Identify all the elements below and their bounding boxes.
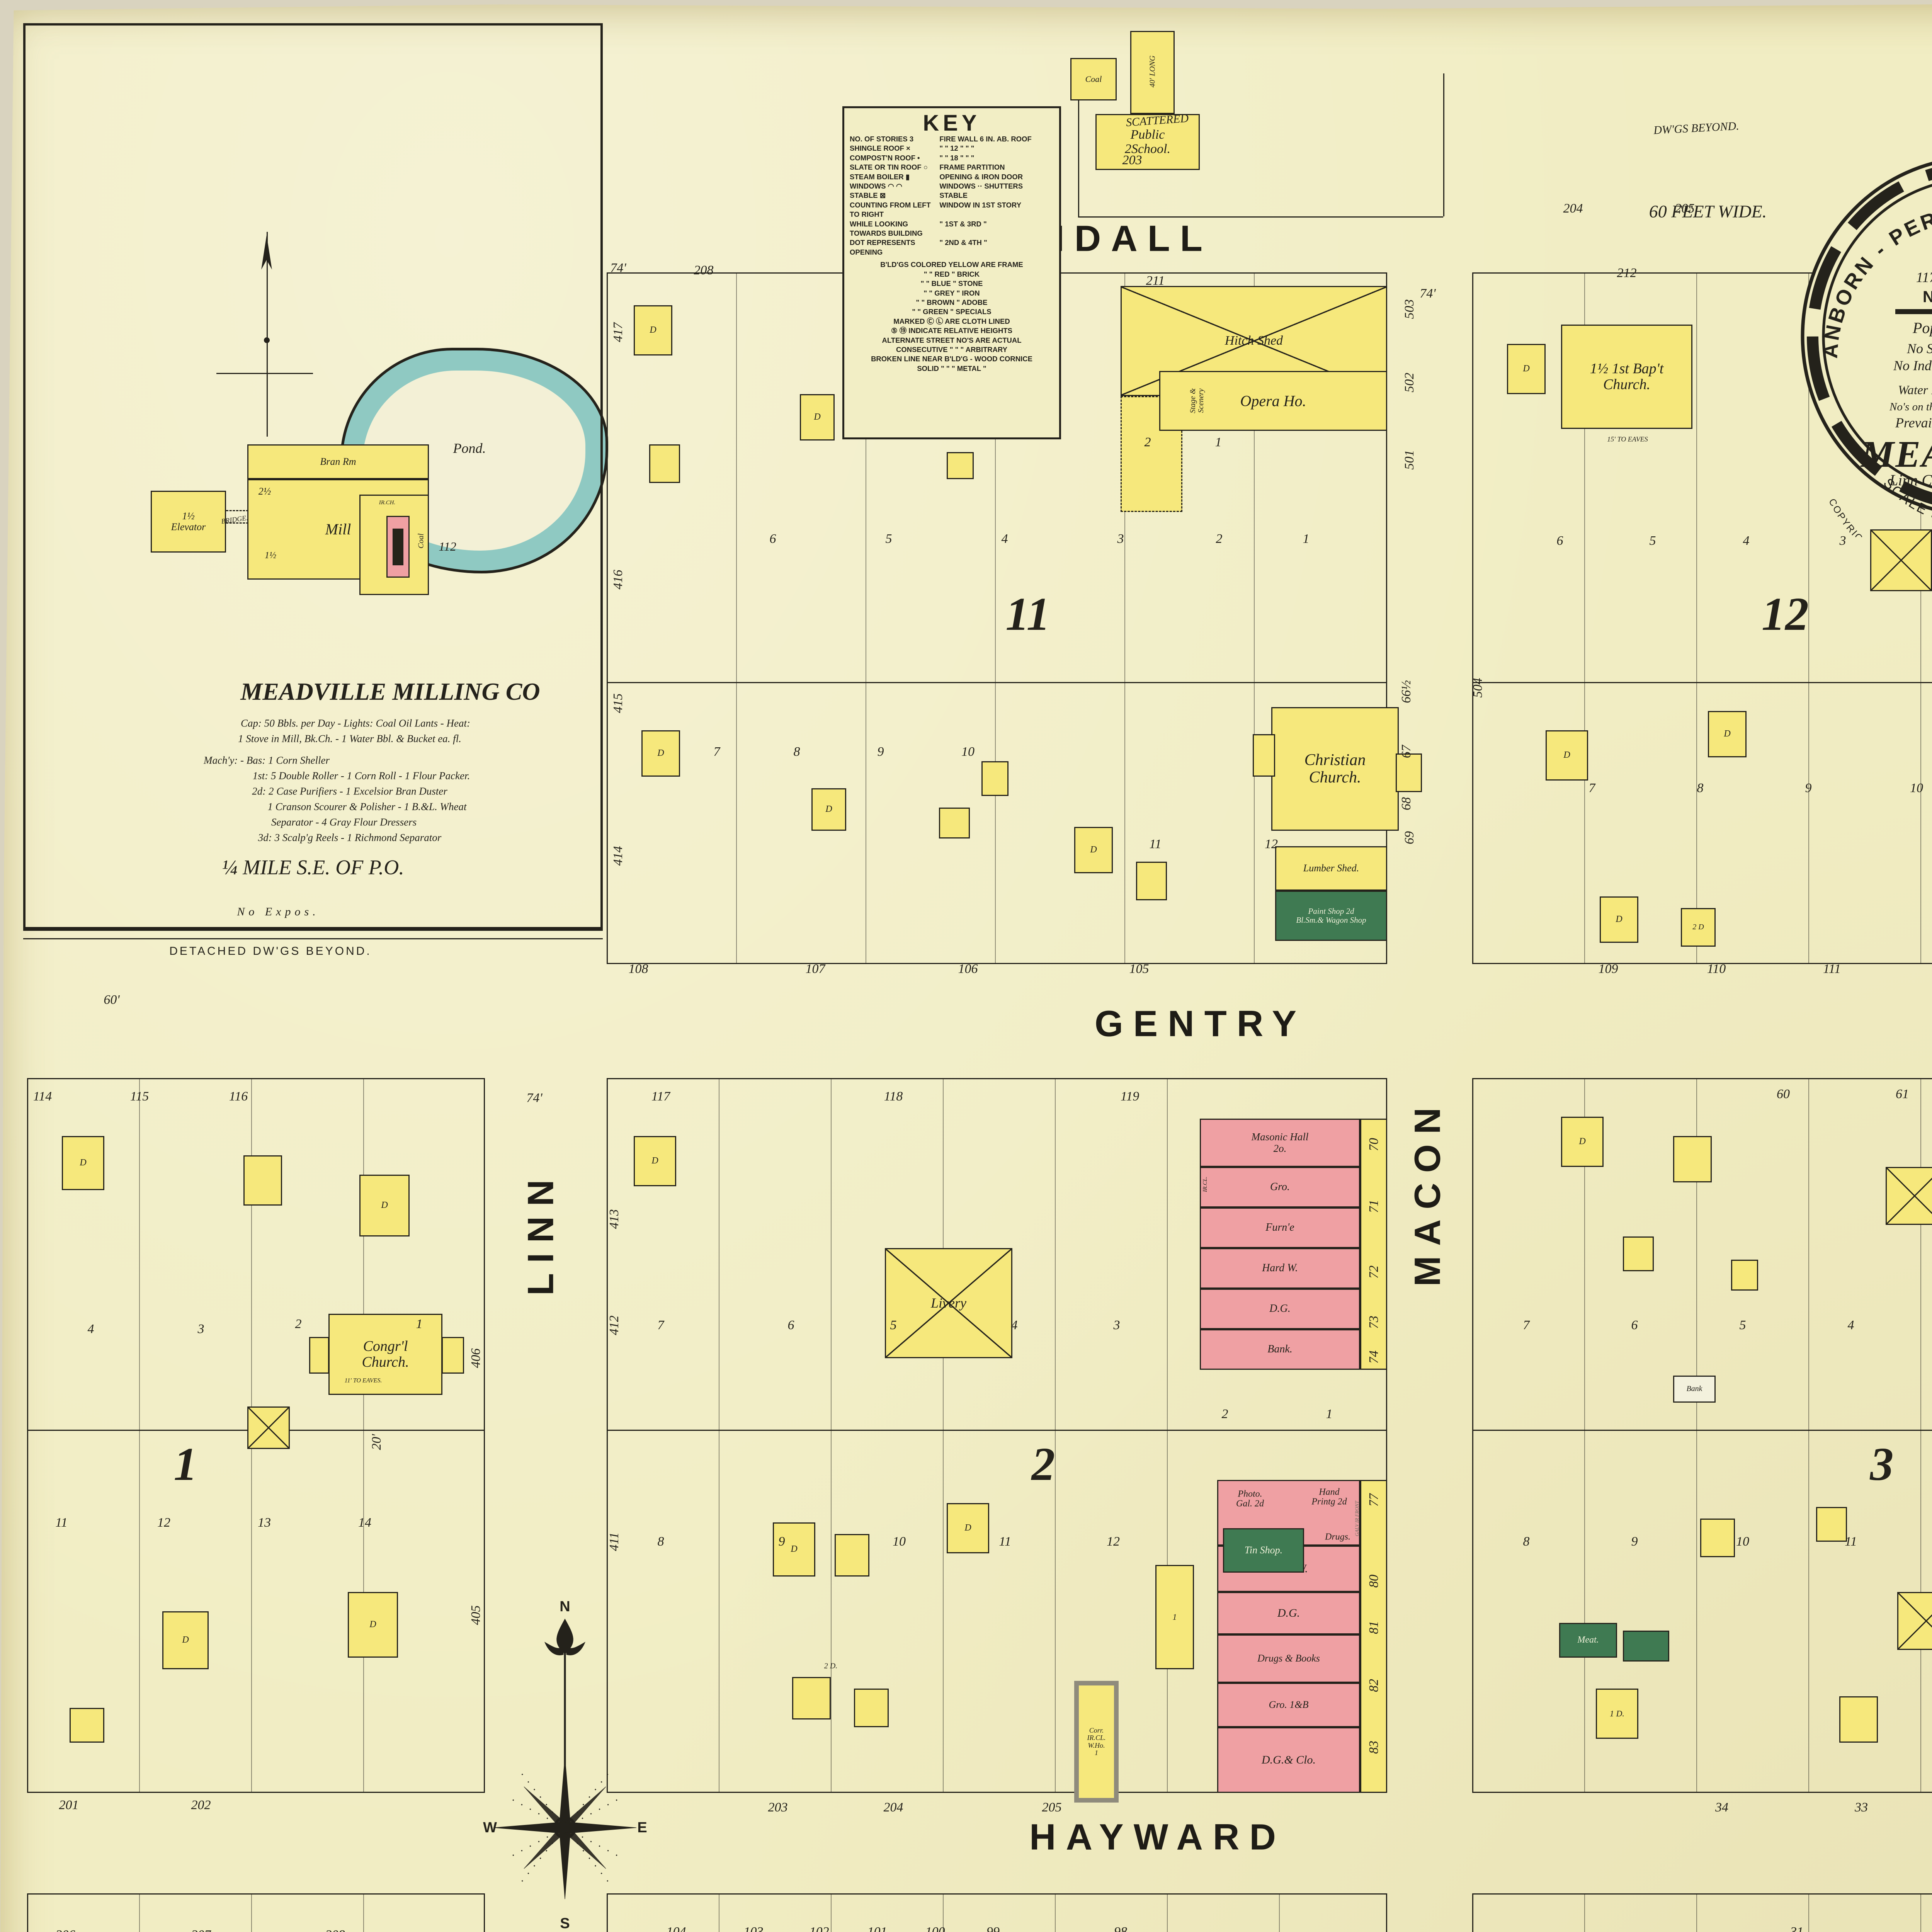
building: Hard W. bbox=[1200, 1248, 1360, 1289]
street-number: 501 bbox=[1403, 450, 1417, 470]
key-row: WINDOWS ◠ ◠WINDOWS ·· SHUTTERS bbox=[850, 182, 1054, 191]
building-label: D bbox=[1090, 845, 1097, 855]
street-number: 203 bbox=[1122, 153, 1142, 167]
logo-winds: Prevailing Winds ; S.W. bbox=[1895, 415, 1932, 430]
building: D bbox=[947, 1503, 989, 1553]
lot-divider bbox=[363, 1893, 364, 1932]
building-label: D bbox=[369, 1620, 376, 1630]
map-label: 15' TO EAVES bbox=[1607, 435, 1648, 443]
map-label: Coal bbox=[417, 534, 425, 549]
street-number: 206 bbox=[56, 1928, 75, 1932]
lot-divider bbox=[1584, 682, 1585, 964]
building: Gro. 1&B bbox=[1217, 1683, 1360, 1727]
building-label: D bbox=[825, 804, 832, 815]
building bbox=[1623, 1631, 1669, 1662]
map-key: KEY NO. OF STORIES 3FIRE WALL 6 IN. AB. … bbox=[842, 106, 1061, 439]
street-number: 74' bbox=[1420, 287, 1435, 301]
logo-town: MEADVILLE bbox=[1860, 434, 1932, 475]
lot-divider bbox=[1167, 1893, 1168, 1932]
street-number: 104 bbox=[667, 1925, 686, 1932]
map-label: 1½ bbox=[265, 551, 276, 560]
street-number: 2 bbox=[1222, 1407, 1228, 1421]
key-footer-line: " " GREY " IRON bbox=[850, 289, 1054, 298]
street-number: 109 bbox=[1599, 962, 1618, 976]
building: Gro. bbox=[1200, 1167, 1360, 1207]
street-name-hayward: HAYWARD bbox=[1029, 1816, 1286, 1859]
map-line bbox=[1472, 1430, 1932, 1431]
key-footer-line: " " BROWN " ADOBE bbox=[850, 298, 1054, 307]
map-label: IR.CL. bbox=[1202, 1177, 1209, 1192]
street-number: 414 bbox=[611, 846, 625, 866]
street-number: 80 bbox=[1367, 1575, 1381, 1588]
lot-divider bbox=[1696, 272, 1697, 682]
lot-divider bbox=[1167, 1078, 1168, 1430]
block-number-1: 1 bbox=[174, 1437, 197, 1492]
sanborn-logo: SANBORN - PERRIS MAP CO., LIMITED 117 & … bbox=[1797, 155, 1932, 537]
street-number: 108 bbox=[629, 962, 648, 976]
map-label: 60 FEET WIDE. bbox=[1649, 202, 1767, 221]
lot-divider bbox=[139, 1078, 140, 1430]
building: D bbox=[359, 1175, 410, 1236]
building: D bbox=[1507, 344, 1546, 394]
street-number: 5 bbox=[886, 532, 892, 546]
street-number: 211 bbox=[1146, 274, 1165, 288]
street-number: 8 bbox=[794, 745, 800, 759]
street-number: 4 bbox=[1002, 532, 1008, 546]
building-label: Masonic Hall 2o. bbox=[1252, 1131, 1309, 1154]
building bbox=[1253, 734, 1275, 777]
logo-population: Population 900. bbox=[1912, 319, 1932, 337]
street-number: 105 bbox=[1129, 962, 1149, 976]
block-3-outline bbox=[1472, 1078, 1932, 1793]
map-label: 2½ bbox=[259, 486, 271, 497]
key-row: SHINGLE ROOF ×" " 12 " " " bbox=[850, 144, 1054, 153]
block-number-3: 3 bbox=[1870, 1437, 1894, 1492]
building-label: Meat. bbox=[1577, 1635, 1599, 1645]
street-number: 77 bbox=[1367, 1493, 1381, 1507]
map-label: GALV IR FRONT bbox=[1354, 1501, 1360, 1536]
logo-water: Water Facilities : Private Wells & Cist'… bbox=[1898, 383, 1932, 397]
key-footer-line: " " GREEN " SPECIALS bbox=[850, 307, 1054, 316]
street-number: 98 bbox=[1114, 1925, 1127, 1932]
lot-divider bbox=[831, 1078, 832, 1430]
street-number: 69 bbox=[1403, 831, 1417, 844]
street-number: 60' bbox=[104, 993, 119, 1007]
street-number: 2 bbox=[1145, 435, 1151, 449]
street-number: 12 bbox=[1107, 1535, 1120, 1549]
building bbox=[393, 529, 403, 565]
building: D bbox=[641, 730, 680, 777]
street-number: 207 bbox=[191, 1928, 211, 1932]
building-label: D bbox=[650, 325, 656, 335]
lot-divider bbox=[1055, 1893, 1056, 1932]
street-number: 11 bbox=[1149, 837, 1161, 851]
street-number: 203 bbox=[768, 1801, 788, 1815]
building: 2 D bbox=[1681, 908, 1716, 947]
compass-rose: N W E S bbox=[483, 1596, 649, 1932]
street-number: 103 bbox=[744, 1925, 764, 1932]
building: D bbox=[348, 1592, 398, 1658]
street-number: 4 bbox=[1743, 534, 1750, 548]
map-label: 1 Stove in Mill, Bk.Ch. - 1 Water Bbl. &… bbox=[238, 733, 461, 745]
lot-divider bbox=[251, 1893, 252, 1932]
street-number: 9 bbox=[878, 745, 884, 759]
building-label: Corr. IR.CL. W.Ho. 1 bbox=[1087, 1727, 1105, 1757]
map-label: IR.CH. bbox=[379, 500, 396, 506]
street-number: 504 bbox=[1471, 678, 1485, 698]
street-number: 68 bbox=[1400, 797, 1413, 810]
compass-s: S bbox=[560, 1915, 570, 1932]
building bbox=[835, 1534, 869, 1577]
map-sheet: KEY NO. OF STORIES 3FIRE WALL 6 IN. AB. … bbox=[0, 0, 1932, 1932]
key-color-rows: B'LD'GS COLORED YELLOW ARE FRAME" " RED … bbox=[850, 260, 1054, 373]
building-label: 1 D. bbox=[1610, 1709, 1624, 1718]
street-number: 71 bbox=[1367, 1200, 1381, 1213]
street-number: 10 bbox=[961, 745, 975, 759]
map-line bbox=[226, 510, 248, 511]
building bbox=[1396, 753, 1422, 792]
street-number: 7 bbox=[1589, 781, 1595, 795]
lot-divider bbox=[139, 1893, 140, 1932]
building-label: Gro. 1&B bbox=[1269, 1699, 1308, 1710]
map-canvas: KEY NO. OF STORIES 3FIRE WALL 6 IN. AB. … bbox=[0, 0, 1932, 1932]
building-label: D bbox=[814, 412, 820, 422]
street-number: 74' bbox=[526, 1091, 542, 1105]
street-number: 116 bbox=[229, 1090, 248, 1104]
street-number: 60 bbox=[1777, 1087, 1790, 1101]
key-footer-line: " " BLUE " STONE bbox=[850, 279, 1054, 288]
lot-divider bbox=[251, 1430, 252, 1793]
street-number: 83 bbox=[1367, 1741, 1381, 1754]
logo-engines: No Steam & No Hand Engines bbox=[1906, 341, 1932, 356]
building: D bbox=[773, 1522, 815, 1577]
street-number: 3 bbox=[198, 1322, 204, 1336]
key-row: WHILE LOOKING TOWARDS BUILDING" 1ST & 3R… bbox=[850, 219, 1054, 238]
street-number: 8 bbox=[658, 1535, 664, 1549]
street-number: 3 bbox=[1114, 1318, 1120, 1332]
map-label: Stage & Scenery bbox=[1189, 388, 1205, 413]
lot-divider bbox=[251, 1078, 252, 1430]
lot-divider bbox=[736, 682, 737, 964]
building bbox=[1700, 1519, 1735, 1557]
street-number: 66½ bbox=[1400, 680, 1413, 703]
street-number: 413 bbox=[607, 1209, 621, 1229]
street-number: 10 bbox=[893, 1535, 906, 1549]
building-label: Public 2School. bbox=[1125, 128, 1170, 156]
building-label: Hitch Shed bbox=[1225, 334, 1283, 348]
building: D bbox=[1074, 827, 1113, 873]
building: Meat. bbox=[1559, 1623, 1617, 1658]
building bbox=[442, 1337, 464, 1374]
street-number: 110 bbox=[1707, 962, 1726, 976]
key-footer-line: ⑤ ⑲ INDICATE RELATIVE HEIGHTS bbox=[850, 326, 1054, 335]
building: Paint Shop 2d Bl.Sm.& Wagon Shop bbox=[1275, 891, 1387, 941]
key-symbol-rows: NO. OF STORIES 3FIRE WALL 6 IN. AB. ROOF… bbox=[850, 134, 1054, 257]
street-number: 212 bbox=[1617, 266, 1637, 280]
building-label: Bank bbox=[1686, 1385, 1702, 1393]
building-label: D bbox=[1523, 364, 1529, 374]
building-label: D.G. bbox=[1269, 1303, 1290, 1315]
lot-divider bbox=[736, 272, 737, 682]
building bbox=[1360, 1119, 1387, 1370]
building bbox=[243, 1155, 282, 1206]
building: D bbox=[162, 1611, 209, 1669]
street-name-gentry: GENTRY bbox=[1095, 1003, 1306, 1045]
lot-divider bbox=[1584, 1430, 1585, 1793]
block-4-outline bbox=[1472, 1893, 1932, 1932]
street-number: 9 bbox=[1631, 1535, 1638, 1549]
street-number: 2 bbox=[295, 1317, 302, 1331]
building-label: 1 bbox=[1173, 1612, 1177, 1622]
lot-divider bbox=[831, 1893, 832, 1932]
building: Bran Rm bbox=[247, 444, 429, 479]
building: Bank bbox=[1673, 1376, 1716, 1403]
street-number: 13 bbox=[258, 1516, 271, 1530]
lot-divider bbox=[1124, 682, 1125, 964]
lot-divider bbox=[1808, 1893, 1809, 1932]
key-footer-line: ALTERNATE STREET NO'S ARE ACTUAL bbox=[850, 336, 1054, 345]
lot-divider bbox=[995, 682, 996, 964]
street-number: 81 bbox=[1367, 1621, 1381, 1634]
building: D bbox=[1708, 711, 1747, 757]
building bbox=[1673, 1136, 1712, 1182]
block-number-2: 2 bbox=[1032, 1437, 1055, 1492]
key-footer-line: CONSECUTIVE " " " ARBITRARY bbox=[850, 345, 1054, 354]
map-line bbox=[23, 938, 603, 939]
street-number: 73 bbox=[1367, 1316, 1381, 1329]
street-number: 1 bbox=[1326, 1407, 1333, 1421]
street-number: 10 bbox=[1736, 1535, 1749, 1549]
compass-w: W bbox=[483, 1820, 497, 1836]
street-number: 6 bbox=[770, 532, 776, 546]
street-number: 34 bbox=[1715, 1801, 1728, 1815]
key-footer-line: B'LD'GS COLORED YELLOW ARE FRAME bbox=[850, 260, 1054, 269]
street-name-linn: LINN bbox=[520, 1170, 562, 1296]
block-6-outline bbox=[27, 1893, 485, 1932]
map-label: No Expos. bbox=[237, 906, 319, 918]
key-footer-line: MARKED Ⓒ Ⓛ ARE CLOTH LINED bbox=[850, 317, 1054, 326]
street-number: 204 bbox=[1563, 202, 1583, 216]
lot-divider bbox=[943, 1430, 944, 1793]
lot-divider bbox=[1920, 1078, 1921, 1430]
street-number: 115 bbox=[130, 1090, 149, 1104]
street-number: 101 bbox=[867, 1925, 887, 1932]
building bbox=[1816, 1507, 1847, 1542]
street-number: 5 bbox=[1740, 1318, 1746, 1332]
street-number: 205 bbox=[1675, 202, 1695, 216]
building-label: Tin Shop. bbox=[1245, 1545, 1282, 1556]
lot-divider bbox=[866, 682, 866, 964]
street-number: 8 bbox=[1697, 781, 1704, 795]
street-number: 10 bbox=[1910, 781, 1923, 795]
lot-divider bbox=[1584, 1893, 1585, 1932]
street-number: 61 bbox=[1896, 1087, 1909, 1101]
map-line bbox=[607, 682, 1387, 683]
map-label: DW'GS BEYOND. bbox=[1653, 120, 1740, 136]
street-number: 12 bbox=[1265, 837, 1278, 851]
block-number-11: 11 bbox=[1005, 587, 1050, 641]
map-line bbox=[216, 373, 313, 374]
building-label: D bbox=[657, 748, 664, 759]
map-label: Photo. Gal. 2d bbox=[1236, 1490, 1264, 1509]
street-number: 406 bbox=[469, 1349, 483, 1368]
logo-nos-note: No's on this map are taken from State Bo… bbox=[1889, 401, 1932, 413]
lot-divider bbox=[719, 1430, 719, 1793]
lot-divider bbox=[1696, 1430, 1697, 1793]
street-number: 412 bbox=[607, 1316, 621, 1335]
building-label: 1½ 1st Bap't Church. bbox=[1590, 361, 1664, 393]
building-label: D bbox=[381, 1201, 388, 1211]
building-label: D bbox=[182, 1635, 189, 1645]
key-row: COUNTING FROM LEFT TO RIGHTWINDOW IN 1ST… bbox=[850, 201, 1054, 219]
street-number: 12 bbox=[157, 1516, 170, 1530]
map-label: 2 D. bbox=[824, 1662, 837, 1670]
street-number: 208 bbox=[325, 1928, 345, 1932]
street-number: 417 bbox=[611, 323, 625, 342]
street-number: 102 bbox=[810, 1925, 829, 1932]
building: Christian Church. bbox=[1271, 707, 1399, 831]
building-label: D bbox=[80, 1158, 86, 1168]
building: D bbox=[634, 305, 672, 355]
key-row: SLATE OR TIN ROOF ○FRAME PARTITION bbox=[850, 163, 1054, 172]
building: Lumber Shed. bbox=[1275, 846, 1387, 891]
lot-divider bbox=[1920, 682, 1921, 964]
lot-divider bbox=[1055, 1078, 1056, 1430]
street-number: 11 bbox=[1845, 1535, 1857, 1549]
building-label: Christian Church. bbox=[1304, 752, 1366, 787]
building: D bbox=[800, 394, 835, 440]
building bbox=[1886, 1167, 1932, 1225]
street-number: 2 bbox=[1216, 532, 1223, 546]
building: 1½ 1st Bap't Church. bbox=[1561, 325, 1692, 429]
street-number: 208 bbox=[694, 264, 714, 277]
lot-divider bbox=[1808, 1078, 1809, 1430]
building: D.G. bbox=[1200, 1289, 1360, 1329]
street-number: 31 bbox=[1790, 1925, 1803, 1932]
street-name-macon: MACON bbox=[1407, 1098, 1449, 1287]
map-label: ¼ MILE S.E. OF P.O. bbox=[222, 856, 404, 878]
street-number: 4 bbox=[88, 1322, 94, 1336]
street-number: 503 bbox=[1403, 299, 1417, 319]
street-number: 405 bbox=[469, 1605, 483, 1625]
map-line bbox=[267, 232, 268, 437]
building: Drugs & Books bbox=[1217, 1634, 1360, 1683]
key-row: NO. OF STORIES 3FIRE WALL 6 IN. AB. ROOF bbox=[850, 134, 1054, 144]
building-label: Hard W. bbox=[1262, 1262, 1298, 1274]
map-label: Cap: 50 Bbls. per Day - Lights: Coal Oil… bbox=[241, 718, 470, 729]
building: D bbox=[62, 1136, 104, 1190]
lot-divider bbox=[1254, 682, 1255, 964]
street-number: 70 bbox=[1367, 1138, 1381, 1151]
map-line bbox=[1472, 682, 1932, 683]
street-number: 67 bbox=[1400, 745, 1413, 758]
building-label: Drugs & Books bbox=[1257, 1653, 1320, 1664]
building bbox=[1136, 862, 1167, 900]
building: Corr. IR.CL. W.Ho. 1 bbox=[1074, 1681, 1119, 1803]
street-number: 7 bbox=[1523, 1318, 1530, 1332]
lot-divider bbox=[1279, 1893, 1280, 1932]
building bbox=[947, 452, 974, 479]
lot-divider bbox=[1808, 682, 1809, 964]
building: Coal bbox=[1070, 58, 1117, 100]
lot-divider bbox=[831, 1430, 832, 1793]
building: Furn'e bbox=[1200, 1207, 1360, 1248]
key-row: STEAM BOILER ▮OPENING & IRON DOOR bbox=[850, 172, 1054, 182]
street-number: 11 bbox=[55, 1516, 67, 1530]
map-label: 11' TO EAVES. bbox=[345, 1378, 382, 1384]
building: D.G.& Clo. bbox=[1217, 1727, 1360, 1793]
building bbox=[1870, 529, 1932, 591]
building-label: D bbox=[1563, 750, 1570, 760]
building: 1 D. bbox=[1596, 1689, 1638, 1739]
map-label: Mach'y: - Bas: 1 Corn Sheller bbox=[204, 755, 330, 766]
street-number: 74 bbox=[1367, 1350, 1381, 1364]
street-number: 415 bbox=[611, 694, 625, 713]
street-number: 114 bbox=[33, 1090, 52, 1104]
key-footer-line: BROKEN LINE NEAR B'LD'G - WOOD CORNICE bbox=[850, 354, 1054, 364]
map-label: 1 Cranson Scourer & Polisher - 1 B.&L. W… bbox=[268, 801, 467, 813]
key-footer-line: " " RED " BRICK bbox=[850, 270, 1054, 279]
building-label: D bbox=[1724, 729, 1730, 739]
building: D bbox=[634, 1136, 676, 1186]
building-label: Furn'e bbox=[1265, 1222, 1294, 1233]
street-number: 4 bbox=[1848, 1318, 1854, 1332]
street-number: 8 bbox=[1523, 1535, 1530, 1549]
map-label: Drugs. bbox=[1325, 1532, 1350, 1542]
street-number: 11 bbox=[999, 1535, 1011, 1549]
street-number: 7 bbox=[714, 745, 720, 759]
map-label: 3d: 3 Scalp'g Reels - 1 Richmond Separat… bbox=[258, 832, 441, 844]
key-title: KEY bbox=[850, 112, 1054, 134]
street-number: 411 bbox=[607, 1532, 621, 1551]
street-number: 6 bbox=[1557, 534, 1563, 548]
compass-e: E bbox=[637, 1820, 647, 1836]
building-label: D bbox=[651, 1156, 658, 1166]
building: 1 bbox=[1155, 1565, 1194, 1669]
map-label: Hand Printg 2d bbox=[1311, 1488, 1347, 1507]
building-label: Opera Ho. bbox=[1240, 393, 1306, 409]
map-label: 40' LONG bbox=[1148, 56, 1156, 88]
street-number: 20' bbox=[370, 1434, 384, 1450]
street-number: 119 bbox=[1121, 1090, 1139, 1104]
building bbox=[1839, 1696, 1878, 1743]
map-label: 2d: 2 Case Purifiers - 1 Excelsior Bran … bbox=[252, 786, 447, 797]
street-number: 74' bbox=[610, 261, 626, 275]
building-label: Lumber Shed. bbox=[1303, 863, 1359, 874]
street-number: 4 bbox=[1011, 1318, 1018, 1332]
map-label: Pond. bbox=[453, 441, 486, 456]
map-line bbox=[607, 1430, 1387, 1431]
building bbox=[70, 1708, 104, 1743]
map-label: Separator - 4 Gray Flour Dressers bbox=[271, 817, 417, 828]
building-label: Gro. bbox=[1270, 1181, 1290, 1193]
building: D bbox=[1600, 896, 1638, 943]
street-number: 6 bbox=[788, 1318, 794, 1332]
building-label: D bbox=[1579, 1137, 1585, 1147]
building: Livery bbox=[885, 1248, 1012, 1358]
building bbox=[981, 761, 1009, 796]
street-number: 82 bbox=[1367, 1679, 1381, 1692]
building: D bbox=[1546, 730, 1588, 781]
building bbox=[1731, 1260, 1758, 1291]
street-number: 72 bbox=[1367, 1265, 1381, 1279]
map-label: 112 bbox=[439, 540, 456, 553]
compass-n: N bbox=[560, 1599, 570, 1615]
building: D.G. bbox=[1217, 1592, 1360, 1634]
building: Tin Shop. bbox=[1223, 1528, 1304, 1573]
building-label: 1½ Elevator bbox=[171, 511, 206, 532]
street-number: 14 bbox=[358, 1516, 371, 1530]
